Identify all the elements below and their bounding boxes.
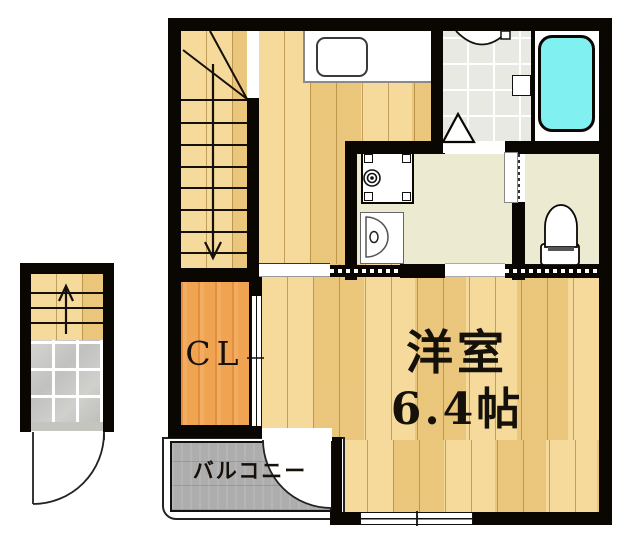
entrance-wall-right — [103, 263, 114, 432]
balcony-label: バルコニー — [172, 460, 328, 481]
washroom-door — [445, 263, 505, 277]
entrance-wall-left — [20, 263, 31, 432]
sliding-door-track — [330, 265, 402, 277]
sliding-window — [360, 512, 473, 525]
closet-label: CL — [181, 337, 249, 370]
hallway-floor — [259, 141, 345, 264]
balcony-door-opening — [262, 428, 332, 440]
bathtub — [538, 35, 595, 132]
wall-exterior-right — [599, 18, 612, 525]
entrance-tile-floor — [31, 340, 103, 422]
wall-kitchen-bathroom — [431, 18, 443, 154]
wall-stair-kitchen — [247, 98, 259, 282]
wall-closet-bottom — [168, 425, 262, 438]
entrance-threshold — [31, 422, 103, 431]
wall-washroom-top — [345, 141, 445, 154]
pan-corner — [364, 154, 373, 163]
wall-bathroom-bottom-right — [505, 141, 612, 154]
bathroom-door-opening — [443, 142, 505, 153]
room-opening-hall — [259, 263, 330, 277]
toilet-room-floor — [525, 154, 600, 264]
entrance-swing-door — [33, 432, 104, 504]
washing-machine-pan — [361, 151, 414, 204]
wall-room-top-right — [505, 264, 600, 278]
wall-bath-divider — [531, 28, 535, 144]
wall-exterior-top — [168, 18, 612, 31]
bath-counter-tray — [512, 75, 531, 96]
closet-sliding-door — [251, 296, 262, 426]
pan-corner — [402, 192, 411, 201]
floor-plan: CL 洋室 6.4帖 バルコニー — [0, 0, 631, 548]
main-room-size-label: 6.4帖 — [352, 388, 562, 432]
staircase-floor — [181, 31, 247, 271]
wall-stair-bottom — [168, 268, 262, 282]
entrance-stair-floor — [31, 274, 103, 340]
washbasin — [360, 212, 404, 264]
wall-room-top-segment — [400, 264, 445, 278]
wall-exterior-left — [168, 18, 181, 438]
pan-corner — [364, 192, 373, 201]
western-room-floor-lower — [342, 440, 600, 512]
kitchen-sink — [316, 37, 368, 77]
wall-washroom-left — [345, 141, 357, 280]
pan-corner — [402, 154, 411, 163]
wall-balcony-right — [332, 437, 342, 513]
toilet-door — [504, 152, 518, 203]
main-room-name-label: 洋室 — [357, 330, 557, 377]
entrance-wall-top — [20, 263, 114, 274]
